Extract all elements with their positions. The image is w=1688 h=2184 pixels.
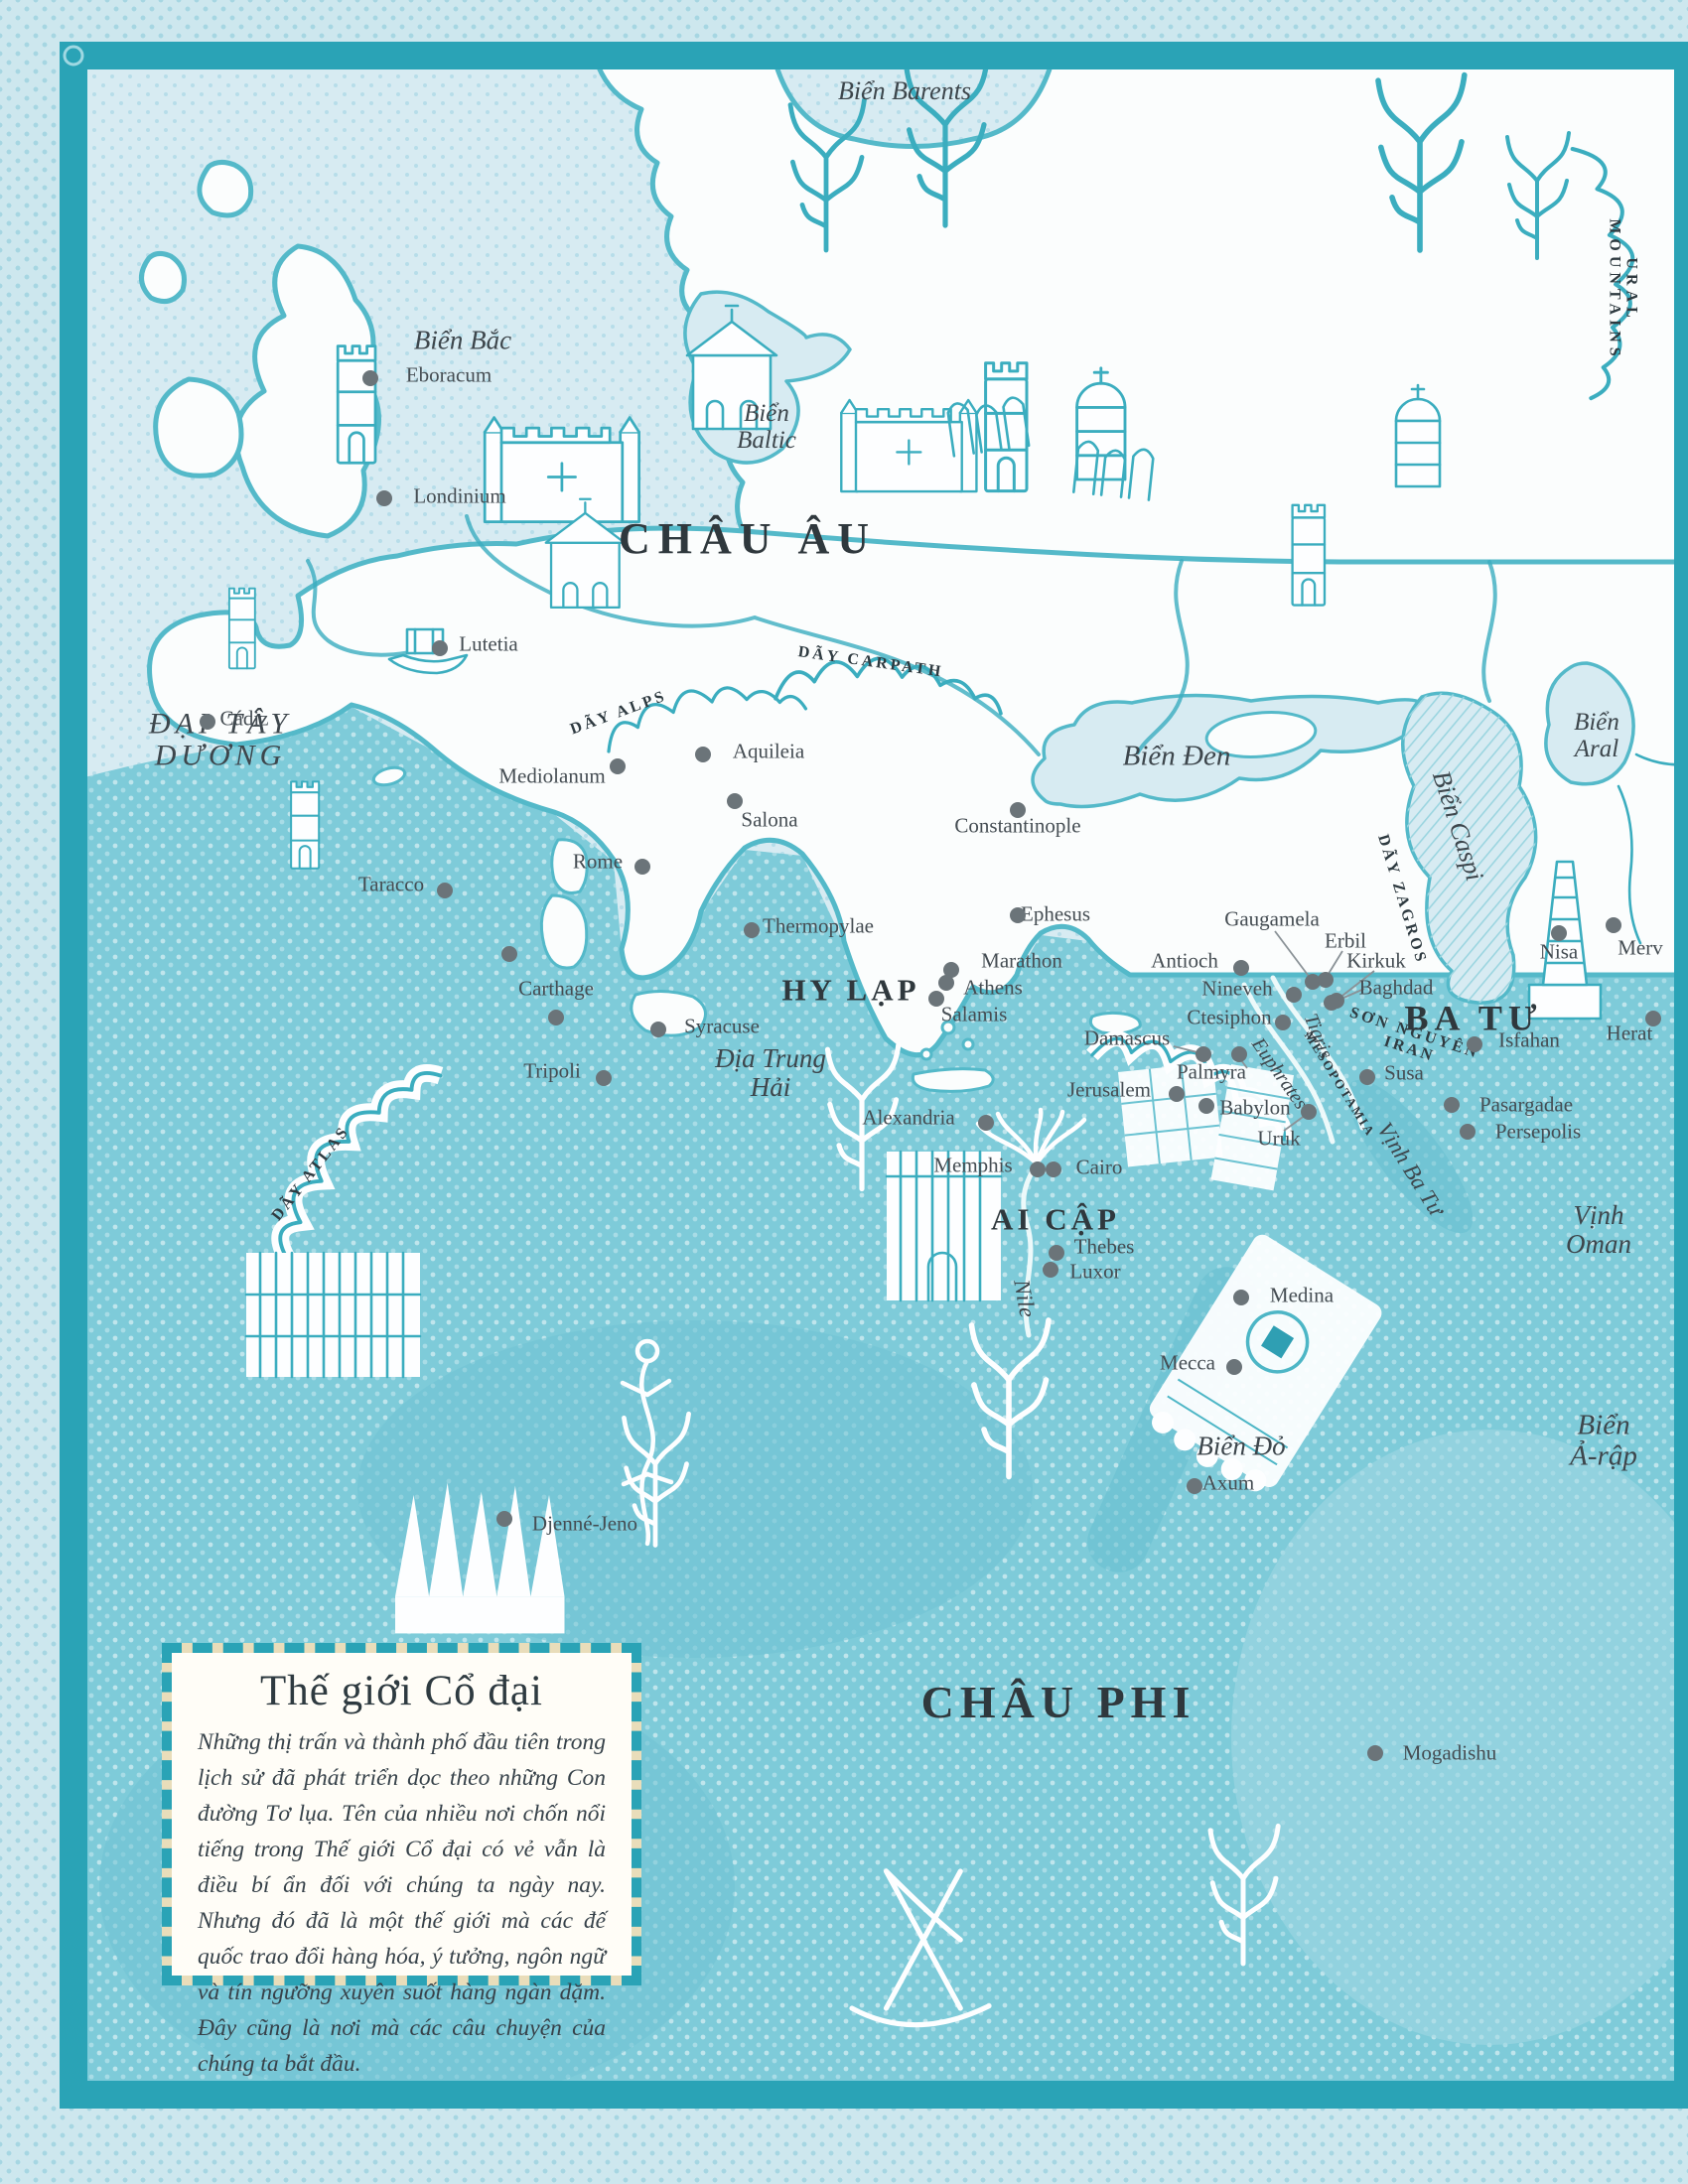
city-label-babylon: Babylon xyxy=(1219,1097,1290,1120)
city-dot-herat xyxy=(1645,1011,1661,1026)
city-dot-ctesiphon xyxy=(1275,1015,1291,1030)
city-label-herat: Herat xyxy=(1607,1023,1653,1045)
city-dot-baghdad xyxy=(1324,995,1339,1011)
city-label-cadiz: Cádiz xyxy=(220,708,269,731)
city-dot-mogadishu xyxy=(1367,1745,1383,1761)
city-dot-taracco xyxy=(437,883,453,898)
water-label-bien-barents: Biển Barents xyxy=(838,77,971,105)
city-label-athens: Athens xyxy=(963,977,1023,1000)
city-dot-londinium xyxy=(376,490,392,506)
city-dot-thebes xyxy=(1049,1245,1064,1261)
city-label-isfahan: Isfahan xyxy=(1498,1029,1560,1052)
mountain-label-day-alps: DÃY ALPS xyxy=(568,687,669,738)
water-label-bien-bac: Biển Bắc xyxy=(414,326,511,354)
water-label-bien-o: Biển Đỏ xyxy=(1196,1432,1285,1460)
city-dot-antioch xyxy=(1233,960,1249,976)
city-dot-medina xyxy=(1233,1290,1249,1305)
city-label-axum: Axum xyxy=(1202,1472,1255,1495)
city-dot-cadiz xyxy=(200,714,215,730)
ancient-world-map-page: Biển BarentsBiển BắcBiển BalticBiển ĐenB… xyxy=(0,0,1688,2184)
water-label-ia-trung-hai: Địa Trung Hải xyxy=(715,1044,826,1102)
city-dot-mecca xyxy=(1226,1359,1242,1375)
mountain-label-ural-mountains: URAL MOUNTAINS xyxy=(1606,218,1640,360)
city-dot-uruk xyxy=(1301,1104,1317,1120)
city-label-damascus: Damascus xyxy=(1084,1027,1170,1050)
city-label-pasargadae: Pasargadae xyxy=(1479,1094,1573,1117)
water-label-nile: Nile xyxy=(1008,1278,1039,1319)
city-label-taracco: Taracco xyxy=(358,874,424,896)
city-label-tripoli: Tripoli xyxy=(523,1060,581,1083)
city-label-susa: Susa xyxy=(1384,1062,1424,1085)
city-label-djenne-jeno: Djenné-Jeno xyxy=(532,1513,637,1536)
city-dot-pasargadae xyxy=(1444,1097,1460,1113)
mountain-label-day-atlas: DÃY ATLAS xyxy=(268,1123,352,1224)
region-label-hy-lap: HY LẠP xyxy=(781,973,919,1006)
city-dot-constantinople xyxy=(1010,802,1026,818)
city-dot-rome xyxy=(634,859,650,875)
city-label-nisa: Nisa xyxy=(1540,941,1579,964)
city-label-mogadishu: Mogadishu xyxy=(1403,1742,1497,1765)
city-dot-lutetia xyxy=(432,640,448,656)
title-box: Thế giới Cổ đại Những thị trấn và thành … xyxy=(162,1643,641,1985)
water-label-vinh-oman: Vịnh Oman xyxy=(1554,1201,1643,1259)
city-dot-nisa xyxy=(1551,925,1567,941)
city-label-cairo: Cairo xyxy=(1076,1157,1123,1179)
water-label-vinh-ba-tu: Vịnh Ba Tư xyxy=(1371,1119,1448,1221)
map-description: Những thị trấn và thành phố đầu tiên tro… xyxy=(198,1725,606,2083)
city-label-carthage: Carthage xyxy=(518,978,594,1001)
city-label-thebes: Thebes xyxy=(1074,1236,1135,1259)
city-label-medina: Medina xyxy=(1270,1285,1334,1307)
city-label-baghdad: Baghdad xyxy=(1359,977,1434,1000)
city-dot-erbil xyxy=(1318,972,1334,988)
city-dot-salamis xyxy=(928,991,944,1007)
city-label-constantinople: Constantinople xyxy=(954,815,1080,838)
city-label-marathon: Marathon xyxy=(981,950,1062,973)
city-label-alexandria: Alexandria xyxy=(862,1107,954,1130)
city-dot-susa xyxy=(1359,1069,1375,1085)
city-dot-thermopylae xyxy=(744,922,760,938)
city-label-nineveh: Nineveh xyxy=(1201,978,1272,1001)
city-dot-axum xyxy=(1187,1478,1202,1494)
city-label-persepolis: Persepolis xyxy=(1495,1121,1581,1144)
city-label-eboracum: Eboracum xyxy=(406,364,492,387)
city-dot-isfahan xyxy=(1467,1036,1482,1052)
city-label-rome: Rome xyxy=(573,851,623,874)
city-dot-jerusalem xyxy=(1169,1086,1185,1102)
region-label-chau-phi: CHÂU PHI xyxy=(921,1678,1196,1727)
city-dot-merv xyxy=(1606,917,1621,933)
city-label-aquileia: Aquileia xyxy=(733,741,804,763)
city-label-londinium: Londinium xyxy=(413,485,505,508)
city-label-ctesiphon: Ctesiphon xyxy=(1187,1007,1271,1029)
city-label-uruk: Uruk xyxy=(1257,1128,1300,1151)
city-label-palmyra: Palmyra xyxy=(1177,1061,1246,1084)
city-dot-persepolis xyxy=(1460,1124,1476,1140)
region-label-chau-au: CHÂU ÂU xyxy=(619,515,877,563)
city-label-kirkuk: Kirkuk xyxy=(1346,950,1406,973)
water-label-bien-a-rap: Biển Ả-rập xyxy=(1562,1411,1646,1473)
city-dot-carthage xyxy=(548,1010,564,1025)
city-dot-luxor xyxy=(1043,1262,1058,1278)
city-label-memphis: Memphis xyxy=(933,1155,1012,1177)
map-title: Thế giới Cổ đại xyxy=(198,1667,606,1715)
city-label-lutetia: Lutetia xyxy=(459,633,517,656)
city-dot-mediolanum xyxy=(610,758,626,774)
city-label-antioch: Antioch xyxy=(1151,950,1218,973)
city-label-salona: Salona xyxy=(741,809,797,832)
water-label-bien-caspi: Biển Caspi xyxy=(1427,767,1488,885)
city-dot-alexandria xyxy=(978,1115,994,1131)
city-label-ephesus: Ephesus xyxy=(1021,903,1090,926)
city-dot-palmyra xyxy=(1231,1046,1247,1062)
city-label-gaugamela: Gaugamela xyxy=(1224,908,1320,931)
city-label-mediolanum: Mediolanum xyxy=(498,765,605,788)
city-dot-salona xyxy=(727,793,743,809)
city-dot-eboracum xyxy=(362,370,378,386)
city-label-salamis: Salamis xyxy=(941,1004,1008,1026)
city-dot-extra-0 xyxy=(501,946,517,962)
city-label-jerusalem: Jerusalem xyxy=(1067,1079,1151,1102)
water-label-bien-en: Biển Đen xyxy=(1123,741,1231,771)
city-label-syracuse: Syracuse xyxy=(684,1016,760,1038)
city-dot-nineveh xyxy=(1286,987,1302,1003)
city-label-merv: Merv xyxy=(1618,937,1663,960)
city-label-luxor: Luxor xyxy=(1069,1261,1120,1284)
city-dot-djenne-jeno xyxy=(496,1511,512,1527)
city-dot-cairo xyxy=(1046,1161,1061,1177)
city-dot-babylon xyxy=(1198,1098,1214,1114)
city-dot-tripoli xyxy=(596,1070,612,1086)
city-label-thermopylae: Thermopylae xyxy=(763,915,874,938)
mountain-label-day-zagros: DÃY ZAGROS xyxy=(1374,833,1430,967)
water-label-bien-baltic: Biển Baltic xyxy=(737,400,796,454)
city-dot-syracuse xyxy=(650,1022,666,1037)
city-label-mecca: Mecca xyxy=(1160,1352,1215,1375)
mountain-label-day-carpath: DÃY CARPATH xyxy=(797,643,945,681)
city-dot-ephesus xyxy=(1010,907,1026,923)
water-label-bien-aral: Biển Aral xyxy=(1574,709,1619,762)
city-dot-memphis xyxy=(1030,1161,1046,1177)
region-label-ai-cap: AI CẬP xyxy=(991,1202,1120,1235)
city-dot-athens xyxy=(938,975,954,991)
city-dot-aquileia xyxy=(695,747,711,762)
